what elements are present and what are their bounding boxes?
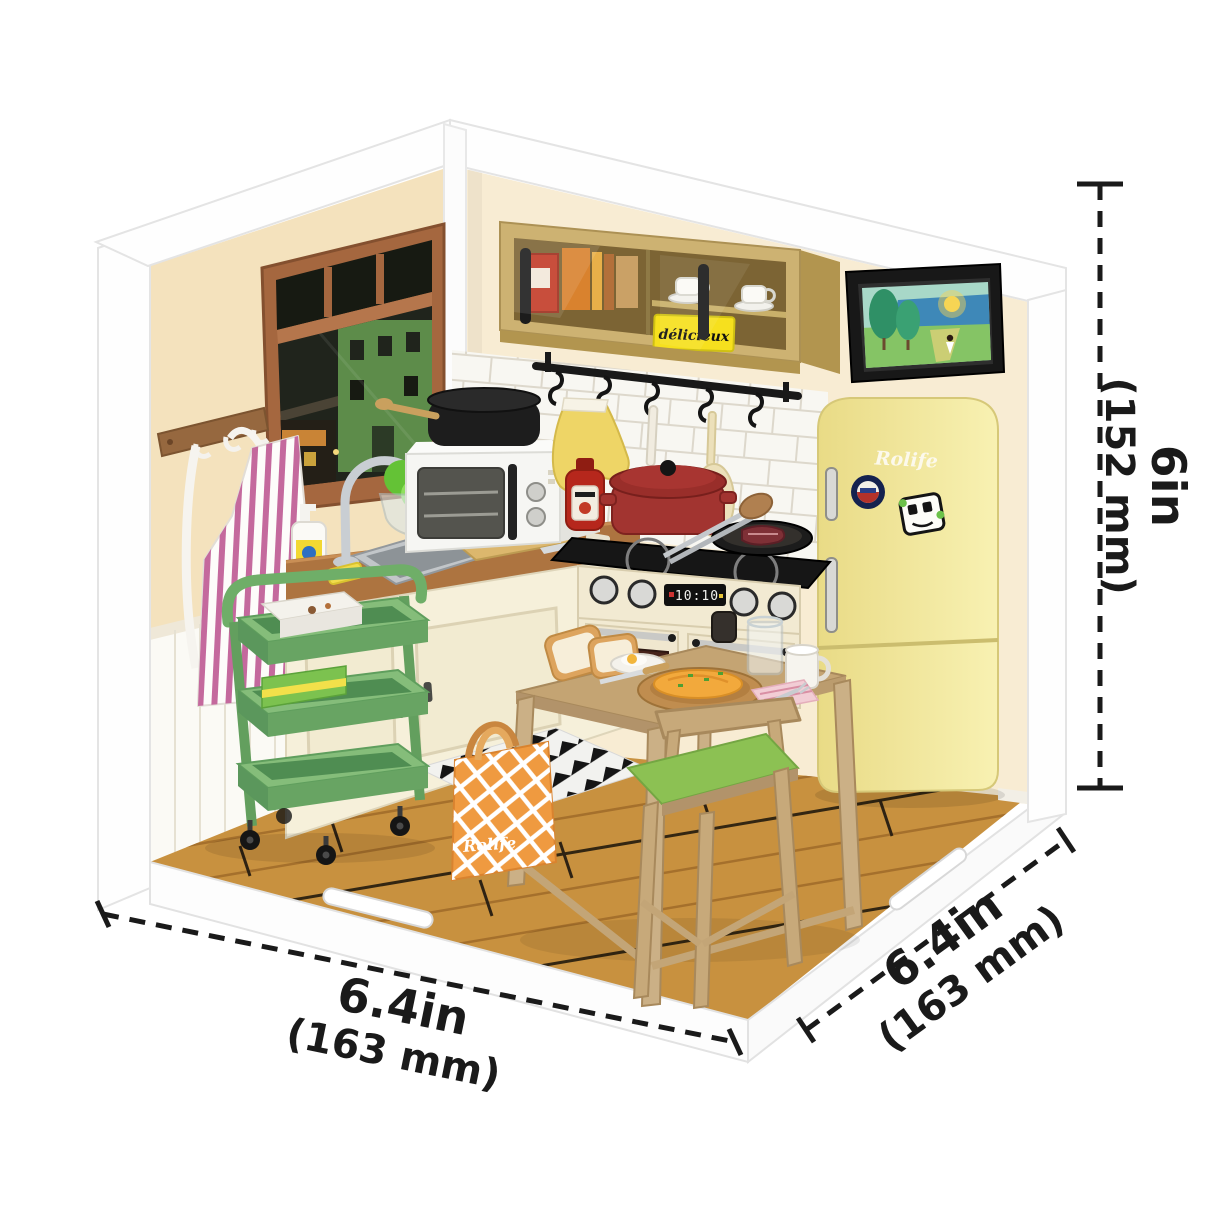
pantry-packet	[592, 252, 602, 310]
tv-painting	[846, 264, 1004, 382]
frame-left	[98, 230, 150, 910]
display-dot-yellow	[719, 594, 723, 598]
frying-pan	[712, 521, 812, 555]
pantry-packet	[604, 254, 614, 310]
display-dot-red	[669, 592, 674, 597]
diorama-illustration: délicieux	[0, 0, 1214, 1214]
fridge-handle-bottom	[826, 558, 837, 632]
oven-rack	[424, 492, 498, 494]
dim-cap	[798, 1018, 814, 1042]
paddle-handle	[707, 412, 716, 466]
steak	[742, 526, 784, 545]
stove-knob	[629, 581, 655, 607]
mitt-cuff	[562, 398, 608, 412]
height-label-in: 6in	[1140, 445, 1195, 527]
tv-picture	[858, 278, 994, 373]
stove-clock: 10:10	[675, 589, 719, 604]
microwave-knob	[527, 508, 545, 526]
spatula-handle	[646, 406, 657, 466]
rack-screw	[167, 439, 173, 445]
microwave-knob	[527, 483, 545, 501]
bag-lattice	[448, 738, 562, 884]
coffee-cup	[742, 286, 766, 303]
pantry-jar	[616, 256, 638, 308]
stove-knob	[769, 593, 795, 619]
ketchup-label-art	[579, 502, 591, 514]
fridge-logo: Rolife	[873, 447, 938, 472]
bag-logo: Rolife	[461, 833, 516, 856]
fridge-handle-top	[826, 468, 837, 520]
stove-knob	[731, 589, 757, 615]
microwave-handle	[508, 464, 517, 540]
oven-rack	[424, 514, 498, 516]
stock-pot-rim	[428, 388, 540, 412]
fridge-sticker-round	[851, 475, 885, 509]
pepper-mill	[712, 612, 736, 642]
figure-canvas: délicieux	[0, 0, 1214, 1214]
microwave-door	[418, 468, 504, 538]
dim-cap	[1058, 828, 1074, 852]
drinking-glass	[748, 617, 782, 674]
wooden-spoon-bowl	[375, 398, 393, 410]
cabinet-side	[800, 250, 840, 374]
height-label-mm: (152 mm)	[1096, 377, 1142, 594]
lid-knob	[660, 460, 676, 476]
frame-right	[1028, 290, 1066, 822]
butter-knife-handle	[646, 666, 666, 671]
ketchup-label-text	[575, 492, 595, 497]
fridge-sticker-face	[898, 492, 947, 535]
dimension-height: 6in (152 mm)	[1077, 184, 1195, 788]
stove-knob	[591, 577, 617, 603]
microwave-button	[548, 479, 555, 484]
